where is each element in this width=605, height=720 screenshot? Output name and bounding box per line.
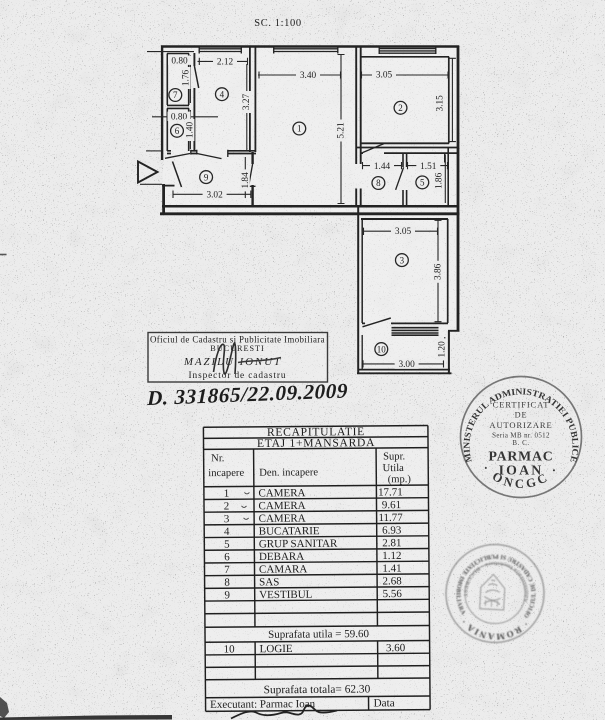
svg-text:CAMARA: CAMARA xyxy=(259,563,307,575)
svg-text:LOGIE: LOGIE xyxy=(260,643,293,655)
svg-text:BUCATARIE: BUCATARIE xyxy=(259,525,320,537)
svg-text:7: 7 xyxy=(224,564,230,576)
svg-text:0.80: 0.80 xyxy=(171,56,188,66)
svg-text:CERTIFICAT: CERTIFICAT xyxy=(493,400,550,410)
svg-text:1.12: 1.12 xyxy=(382,550,401,562)
svg-text:1: 1 xyxy=(297,124,302,134)
svg-text:Suprafata totala= 62.30: Suprafata totala= 62.30 xyxy=(264,683,371,696)
svg-text:4: 4 xyxy=(224,526,230,538)
svg-text:GRUP SANITAR: GRUP SANITAR xyxy=(259,538,338,551)
svg-text:1.41: 1.41 xyxy=(382,563,401,575)
svg-text:Executant: Parmac Ioan: Executant: Parmac Ioan xyxy=(210,698,316,711)
svg-text:3.02: 3.02 xyxy=(206,190,223,200)
svg-text:1.86: 1.86 xyxy=(434,172,444,189)
svg-text:SC. 1:100: SC. 1:100 xyxy=(254,18,301,29)
svg-text:2: 2 xyxy=(224,500,230,512)
svg-text:CAMERA: CAMERA xyxy=(258,500,305,512)
svg-text:6: 6 xyxy=(175,126,180,136)
svg-text:Oficiul de Cadastru si Publici: Oficiul de Cadastru si Publicitate Imobi… xyxy=(150,334,325,344)
svg-text:ETAJ 1+MANSARDA: ETAJ 1+MANSARDA xyxy=(257,436,375,450)
svg-text:Den. incapere: Den. incapere xyxy=(259,467,318,478)
svg-text:11.77: 11.77 xyxy=(378,512,403,524)
svg-text:1.76: 1.76 xyxy=(182,70,192,87)
svg-text:AUTORIZARE: AUTORIZARE xyxy=(489,420,552,430)
svg-text:5.21: 5.21 xyxy=(337,122,347,139)
svg-text:VESTIBUL: VESTIBUL xyxy=(259,589,313,601)
svg-text:Data: Data xyxy=(374,697,395,709)
svg-text:5.56: 5.56 xyxy=(383,588,403,600)
svg-text:Utila: Utila xyxy=(383,463,405,474)
svg-text:9.61: 9.61 xyxy=(382,499,401,511)
svg-text:3.27: 3.27 xyxy=(242,94,252,111)
svg-text:Inspector de cadastru: Inspector de cadastru xyxy=(189,371,287,381)
svg-text:4: 4 xyxy=(220,89,225,99)
svg-text:9: 9 xyxy=(224,589,230,601)
svg-text:3.40: 3.40 xyxy=(300,71,317,81)
svg-text:3.05: 3.05 xyxy=(376,71,393,81)
svg-text:DE: DE xyxy=(515,411,528,420)
svg-text:10: 10 xyxy=(224,643,236,655)
svg-text:7: 7 xyxy=(173,90,178,100)
svg-text:5: 5 xyxy=(224,539,230,551)
svg-text:3.00: 3.00 xyxy=(398,360,415,370)
svg-text:3.05: 3.05 xyxy=(395,227,412,237)
svg-text:6.93: 6.93 xyxy=(382,525,402,537)
svg-text:2: 2 xyxy=(398,103,403,113)
svg-text:CAMERA: CAMERA xyxy=(258,487,305,499)
svg-text:SAS: SAS xyxy=(259,576,279,588)
svg-text:MAZILU IONUT: MAZILU IONUT xyxy=(183,356,282,368)
svg-text:DEBARA: DEBARA xyxy=(259,551,304,563)
svg-text:1.20: 1.20 xyxy=(437,341,447,358)
svg-text:1.44: 1.44 xyxy=(374,162,391,172)
svg-text:3.60: 3.60 xyxy=(386,642,406,654)
svg-text:3.15: 3.15 xyxy=(436,95,446,112)
svg-text:Suprafata utila = 59.60: Suprafata utila = 59.60 xyxy=(268,628,369,641)
svg-text:1.84: 1.84 xyxy=(241,172,251,189)
svg-text:Nr.: Nr. xyxy=(211,453,224,464)
svg-text:1: 1 xyxy=(224,488,230,500)
svg-text:8: 8 xyxy=(376,178,381,188)
svg-text:incapere: incapere xyxy=(208,468,244,479)
svg-text:2.81: 2.81 xyxy=(382,537,401,549)
svg-text:8: 8 xyxy=(224,577,230,589)
svg-text:3: 3 xyxy=(224,513,230,525)
svg-text:5: 5 xyxy=(420,178,425,188)
svg-text:Seria MB nr. 0512: Seria MB nr. 0512 xyxy=(492,433,550,440)
svg-text:10: 10 xyxy=(377,344,387,354)
svg-text:Supr.: Supr. xyxy=(383,451,405,462)
svg-text:PARMAC: PARMAC xyxy=(488,449,553,464)
svg-text:IOAN: IOAN xyxy=(499,462,544,477)
svg-text:9: 9 xyxy=(204,172,209,182)
svg-text:3.86: 3.86 xyxy=(433,263,443,280)
svg-text:6: 6 xyxy=(224,551,230,563)
svg-text:CAMERA: CAMERA xyxy=(259,513,306,525)
svg-text:1.40: 1.40 xyxy=(186,122,196,139)
svg-text:3: 3 xyxy=(400,255,405,265)
svg-text:B. C.: B. C. xyxy=(512,440,529,447)
svg-text:(mp.): (mp.) xyxy=(388,474,412,485)
svg-text:2.68: 2.68 xyxy=(382,575,402,587)
svg-text:2.12: 2.12 xyxy=(217,58,234,68)
svg-text:17.71: 17.71 xyxy=(378,486,403,498)
